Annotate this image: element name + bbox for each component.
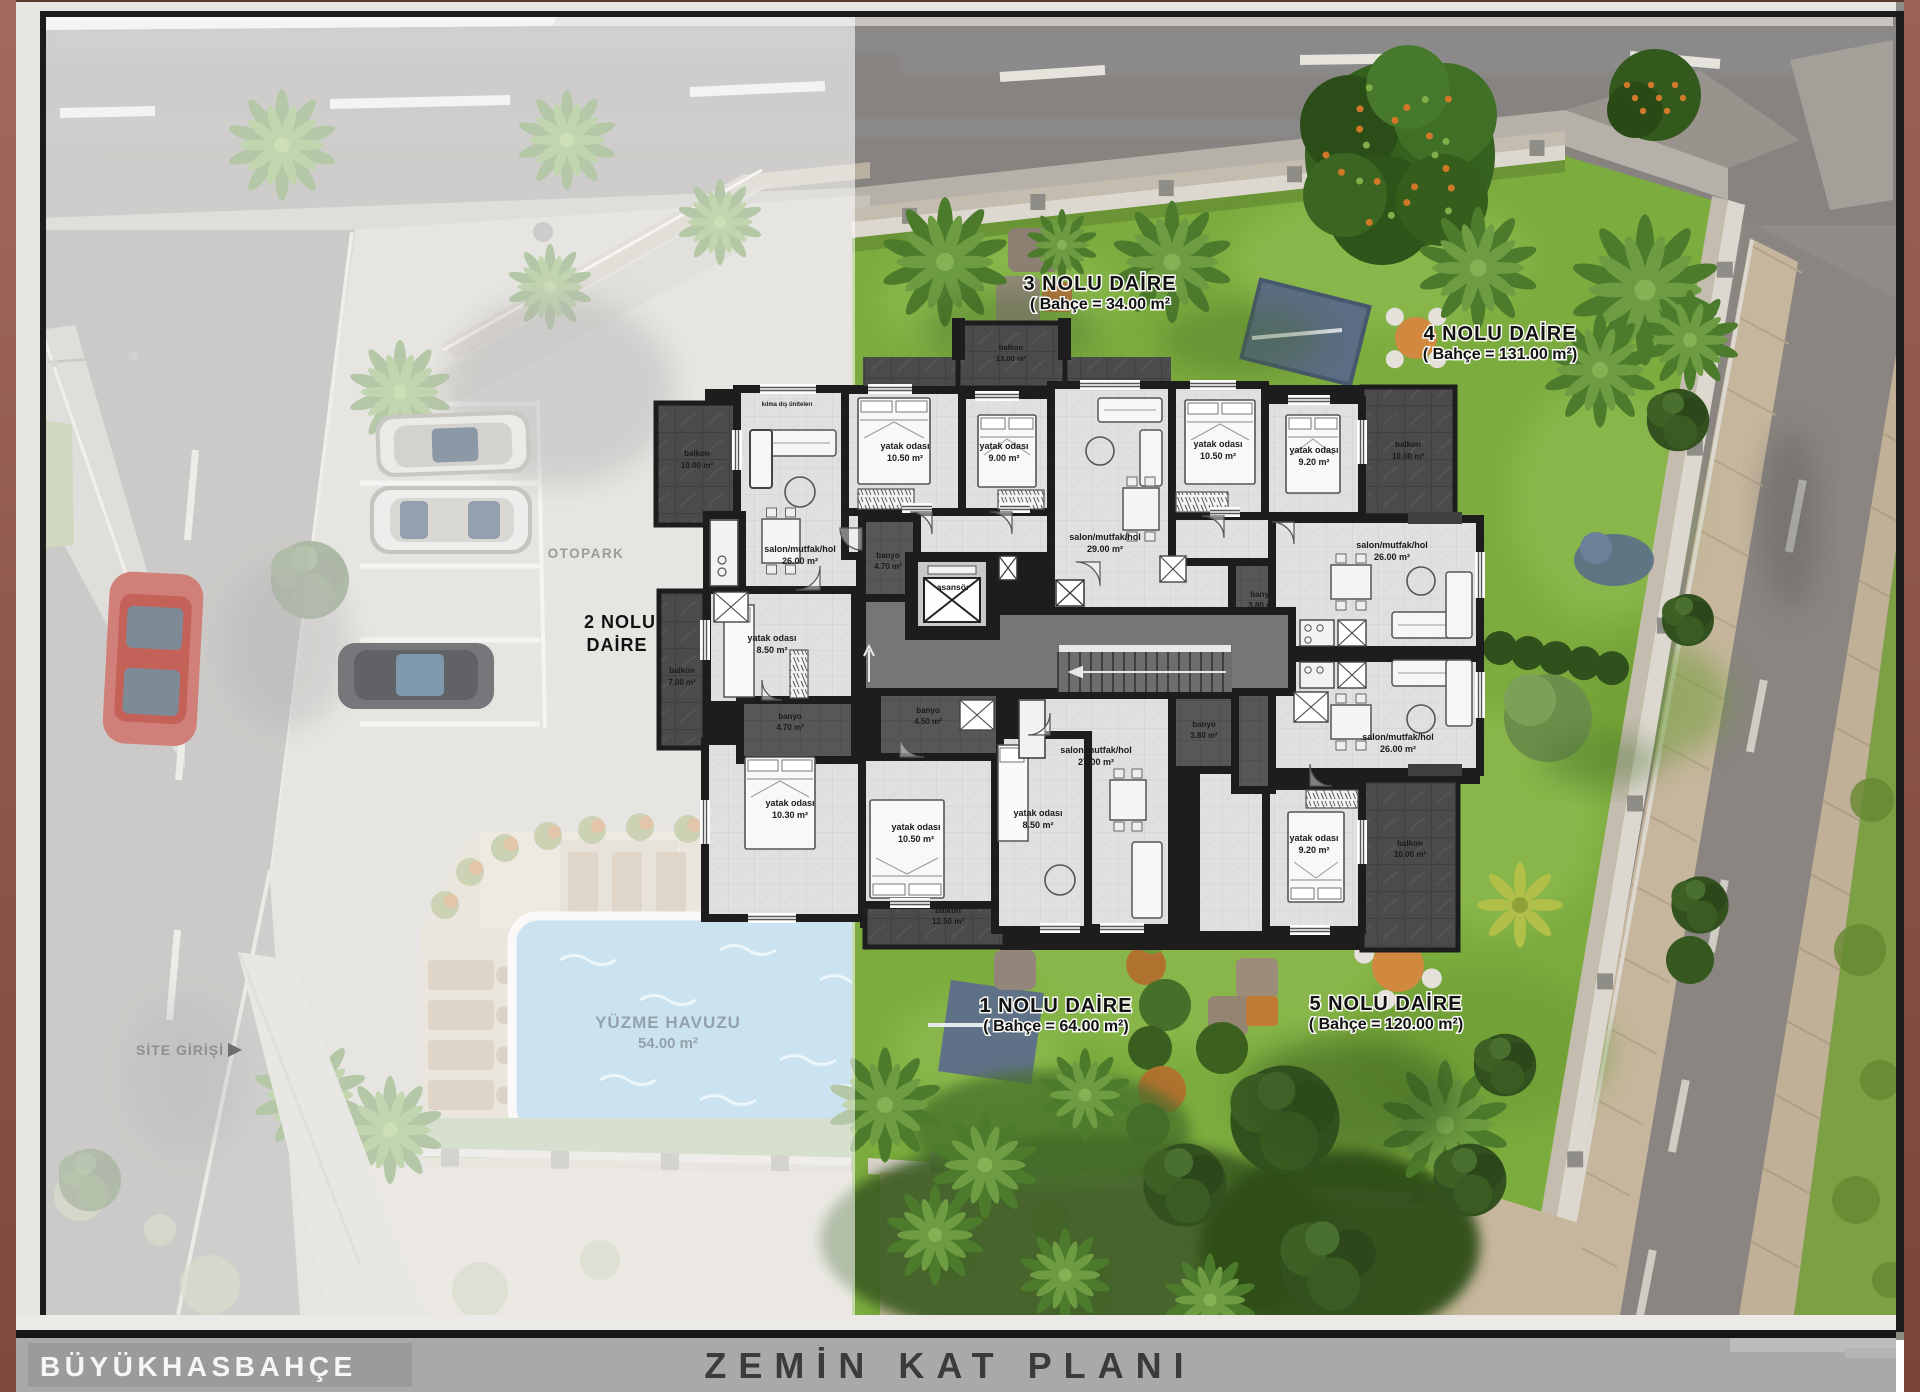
svg-text:26.00 m²: 26.00 m²	[1380, 744, 1416, 754]
svg-text:yatak odası: yatak odası	[880, 441, 929, 451]
svg-text:3 NOLU DAİRE: 3 NOLU DAİRE	[1023, 272, 1176, 295]
svg-text:yatak odası: yatak odası	[979, 441, 1028, 451]
svg-text:ZEMİN KAT PLANI: ZEMİN KAT PLANI	[704, 1345, 1195, 1386]
svg-text:27.00 m²: 27.00 m²	[1078, 757, 1114, 767]
svg-text:3.80 m²: 3.80 m²	[1248, 601, 1276, 610]
svg-text:banyo: banyo	[1192, 720, 1216, 729]
svg-text:10.50 m²: 10.50 m²	[898, 834, 934, 844]
svg-text:( Bahçe = 120.00 m²): ( Bahçe = 120.00 m²)	[1309, 1016, 1463, 1033]
svg-text:10.00 m²: 10.00 m²	[1392, 452, 1424, 461]
svg-text:kılma dış ünitelerı: kılma dış ünitelerı	[762, 402, 813, 408]
svg-text:9.00 m²: 9.00 m²	[988, 453, 1019, 463]
svg-text:salon/mutfak/hol: salon/mutfak/hol	[764, 544, 836, 554]
svg-text:54.00 m²: 54.00 m²	[638, 1035, 698, 1052]
svg-text:12.50 m²: 12.50 m²	[932, 917, 964, 926]
svg-text:8.50 m²: 8.50 m²	[1022, 820, 1053, 830]
svg-text:26.00 m²: 26.00 m²	[782, 556, 818, 566]
svg-text:5 NOLU DAİRE: 5 NOLU DAİRE	[1309, 992, 1462, 1015]
svg-text:banyo: banyo	[1250, 590, 1274, 599]
svg-text:salon/mutfak/hol: salon/mutfak/hol	[1069, 532, 1141, 542]
svg-text:asansör: asansör	[937, 582, 970, 592]
svg-text:4 NOLU DAİRE: 4 NOLU DAİRE	[1423, 322, 1576, 345]
svg-text:balkon: balkon	[999, 343, 1024, 352]
svg-text:29.00 m²: 29.00 m²	[1087, 544, 1123, 554]
svg-text:1 NOLU DAİRE: 1 NOLU DAİRE	[979, 994, 1132, 1017]
svg-text:OTOPARK: OTOPARK	[548, 546, 625, 561]
svg-text:2 NOLU: 2 NOLU	[584, 612, 656, 632]
svg-text:10.30 m²: 10.30 m²	[772, 810, 808, 820]
svg-text:10.00 m²: 10.00 m²	[1394, 850, 1426, 859]
svg-text:( Bahçe = 131.00 m²): ( Bahçe = 131.00 m²)	[1423, 346, 1577, 363]
svg-text:salon/mutfak/hol: salon/mutfak/hol	[1362, 732, 1434, 742]
svg-text:yatak odası: yatak odası	[765, 798, 814, 808]
svg-text:4.50 m²: 4.50 m²	[914, 717, 942, 726]
svg-text:BÜYÜKHASBAHÇE: BÜYÜKHASBAHÇE	[40, 1351, 357, 1382]
svg-text:yatak odası: yatak odası	[1193, 439, 1242, 449]
svg-text:( Bahçe = 64.00 m²): ( Bahçe = 64.00 m²)	[983, 1018, 1128, 1035]
svg-text:9.20 m²: 9.20 m²	[1298, 457, 1329, 467]
svg-text:13.00 m²: 13.00 m²	[996, 354, 1027, 363]
svg-text:DAİRE: DAİRE	[586, 635, 647, 655]
svg-text:yatak odası: yatak odası	[747, 633, 796, 643]
svg-text:salon/mutfak/hol: salon/mutfak/hol	[1060, 745, 1132, 755]
svg-text:banyo: banyo	[876, 551, 900, 560]
svg-text:3.80 m²: 3.80 m²	[1190, 731, 1218, 740]
svg-text:balkon: balkon	[684, 449, 710, 458]
svg-text:salon/mutfak/hol: salon/mutfak/hol	[1356, 540, 1428, 550]
svg-text:7.00 m²: 7.00 m²	[668, 678, 696, 687]
svg-text:balkon: balkon	[935, 906, 961, 915]
svg-text:( Bahçe = 34.00 m²: ( Bahçe = 34.00 m²	[1030, 296, 1170, 313]
svg-text:9.20 m²: 9.20 m²	[1298, 845, 1329, 855]
svg-text:yatak odası: yatak odası	[1013, 808, 1062, 818]
svg-text:YÜZME HAVUZU: YÜZME HAVUZU	[595, 1013, 741, 1032]
svg-text:yatak odası: yatak odası	[891, 822, 940, 832]
svg-text:banyo: banyo	[916, 706, 940, 715]
svg-text:yatak odası: yatak odası	[1289, 833, 1338, 843]
svg-text:26.00 m²: 26.00 m²	[1374, 552, 1410, 562]
svg-text:4.70 m²: 4.70 m²	[874, 562, 902, 571]
svg-text:balkon: balkon	[669, 666, 695, 675]
svg-text:4.70 m²: 4.70 m²	[776, 723, 804, 732]
svg-text:balkon: balkon	[1397, 839, 1423, 848]
svg-text:balkon: balkon	[1395, 440, 1421, 449]
svg-text:SİTE GİRİŞİ: SİTE GİRİŞİ	[136, 1042, 224, 1058]
svg-text:banyo: banyo	[778, 712, 802, 721]
svg-text:8.50 m²: 8.50 m²	[756, 645, 787, 655]
svg-text:10.50 m²: 10.50 m²	[887, 453, 923, 463]
svg-text:10.50 m²: 10.50 m²	[1200, 451, 1236, 461]
svg-text:10.00 m²: 10.00 m²	[681, 461, 713, 470]
svg-text:yatak odası: yatak odası	[1289, 445, 1338, 455]
